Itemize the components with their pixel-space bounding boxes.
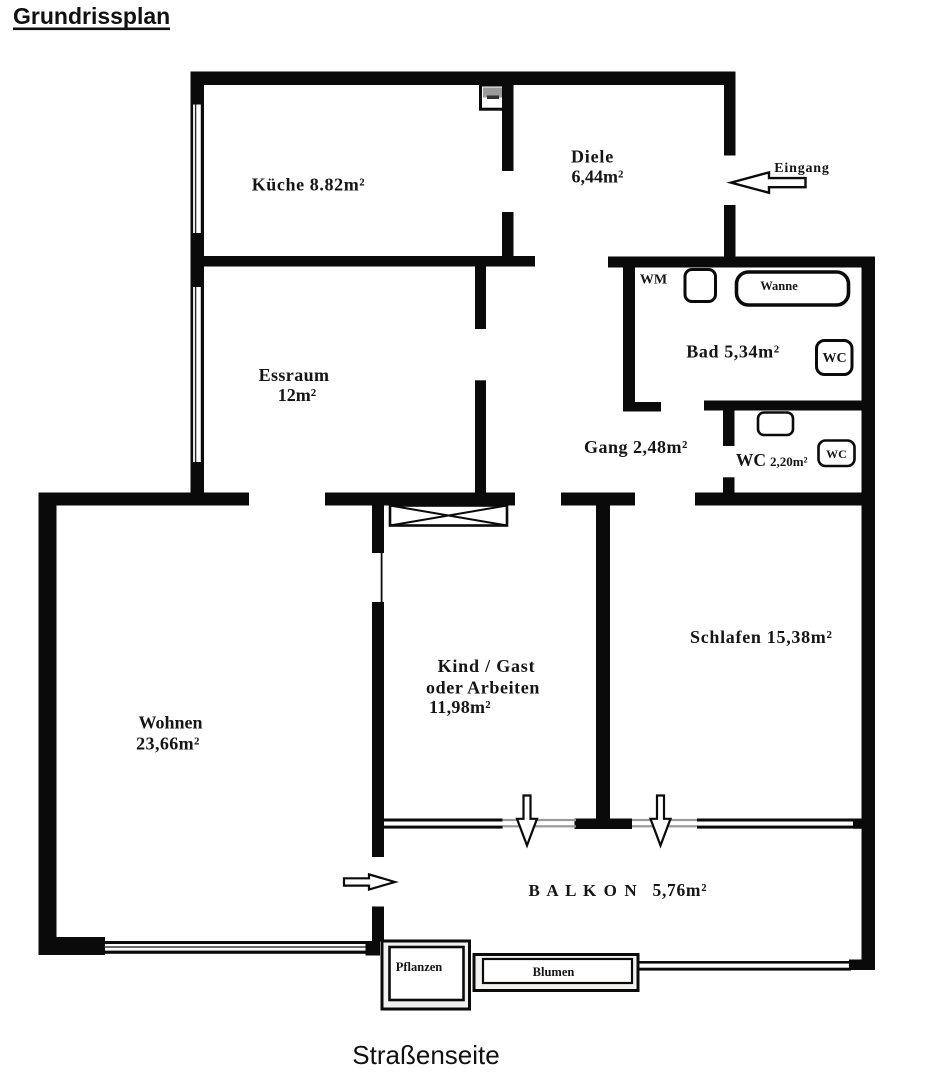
svg-text:Essraum: Essraum — [259, 365, 330, 385]
svg-text:WC: WC — [736, 450, 766, 470]
svg-text:Diele: Diele — [571, 147, 614, 167]
svg-text:Grundrissplan: Grundrissplan — [13, 3, 170, 29]
svg-text:23,66m²: 23,66m² — [136, 734, 200, 754]
svg-text:Blumen: Blumen — [533, 965, 575, 979]
svg-text:6,44m²: 6,44m² — [572, 167, 624, 187]
svg-text:Wanne: Wanne — [760, 279, 798, 293]
svg-text:Pflanzen: Pflanzen — [396, 960, 443, 974]
svg-text:Küche 8.82m²: Küche 8.82m² — [252, 175, 366, 195]
svg-text:5,76m²: 5,76m² — [653, 880, 708, 900]
svg-text:B A L K O N: B A L K O N — [529, 881, 639, 900]
svg-text:Bad 5,34m²: Bad 5,34m² — [686, 342, 779, 362]
svg-text:Straßenseite: Straßenseite — [352, 1040, 499, 1070]
svg-text:12m²: 12m² — [278, 385, 316, 405]
svg-text:Schlafen 15,38m²: Schlafen 15,38m² — [690, 627, 833, 647]
svg-text:Kind / Gast: Kind / Gast — [438, 656, 536, 676]
svg-text:WC: WC — [822, 351, 846, 366]
svg-text:Eingang: Eingang — [774, 161, 829, 176]
svg-text:oder Arbeiten: oder Arbeiten — [426, 678, 540, 698]
svg-text:Gang 2,48m²: Gang 2,48m² — [584, 437, 688, 457]
svg-text:WM: WM — [640, 273, 667, 288]
svg-text:11,98m²: 11,98m² — [429, 697, 491, 717]
svg-text:2,20m²: 2,20m² — [770, 454, 808, 469]
svg-text:Wohnen: Wohnen — [138, 713, 202, 733]
svg-text:WC: WC — [826, 447, 847, 461]
